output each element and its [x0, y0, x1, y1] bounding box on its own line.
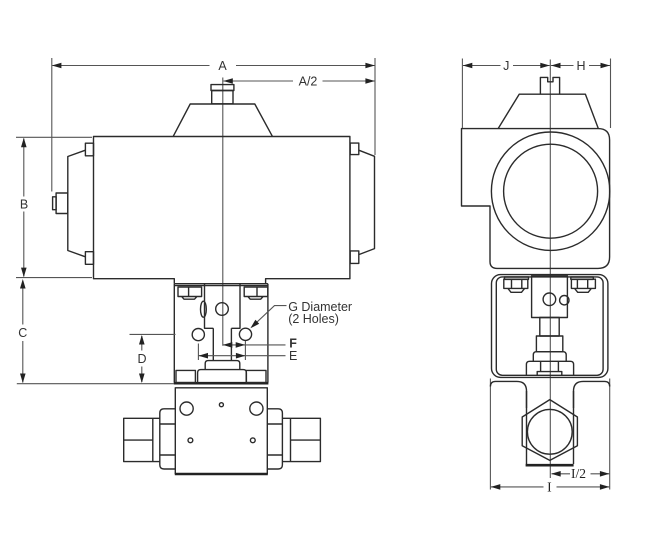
svg-text:A: A — [218, 59, 227, 73]
svg-text:J: J — [503, 59, 509, 73]
svg-text:B: B — [20, 198, 28, 212]
svg-text:H: H — [576, 59, 585, 73]
svg-text:I/2: I/2 — [571, 466, 586, 481]
svg-text:E: E — [289, 349, 297, 363]
svg-text:I: I — [547, 479, 552, 494]
svg-text:A/2: A/2 — [299, 74, 318, 88]
svg-text:(2 Holes): (2 Holes) — [288, 312, 339, 326]
svg-text:D: D — [137, 352, 146, 366]
svg-text:C: C — [18, 326, 27, 340]
